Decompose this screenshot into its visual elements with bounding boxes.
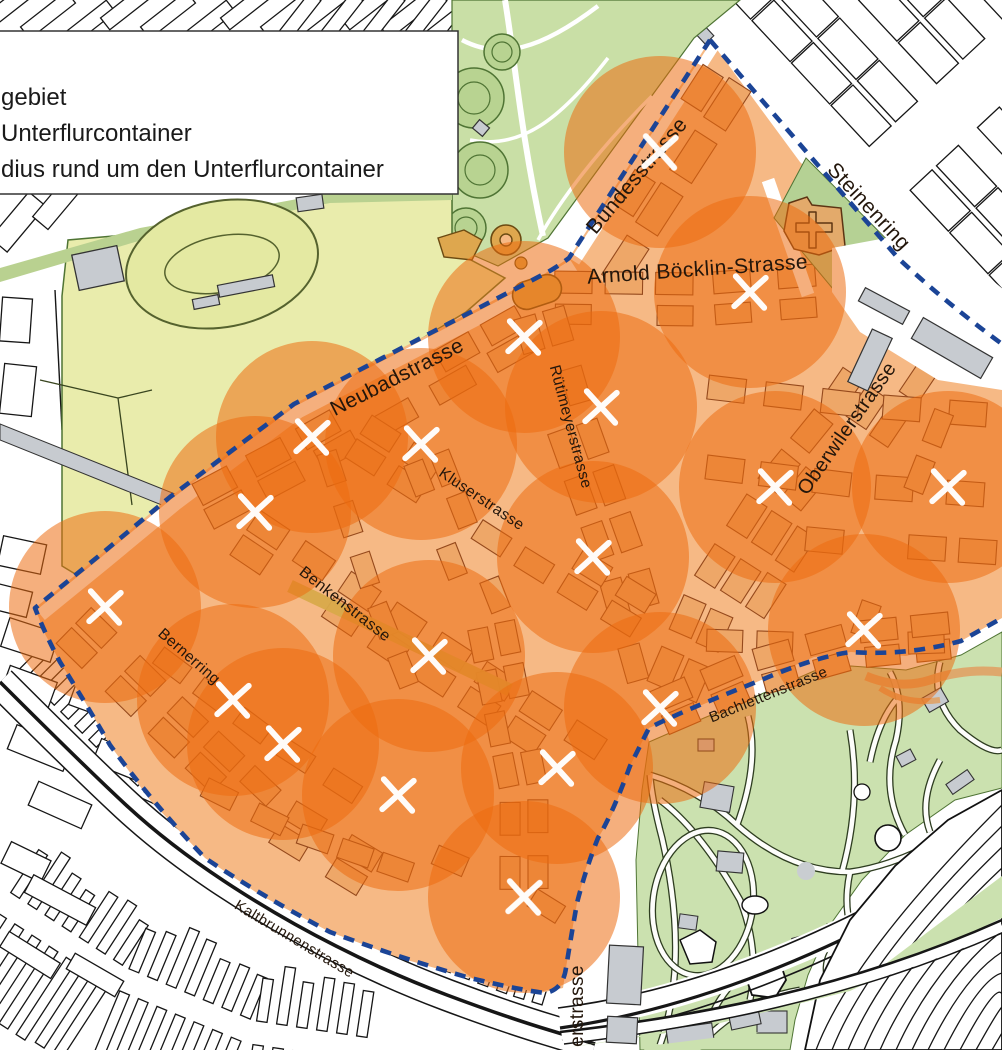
svg-text:Unterflurcontainer: Unterflurcontainer (1, 120, 192, 147)
svg-text:dius rund um den Unterflurcont: dius rund um den Unterflurcontainer (1, 156, 384, 183)
svg-text:erstrasse: erstrasse (567, 965, 588, 1047)
svg-text:gebiet: gebiet (1, 84, 67, 111)
